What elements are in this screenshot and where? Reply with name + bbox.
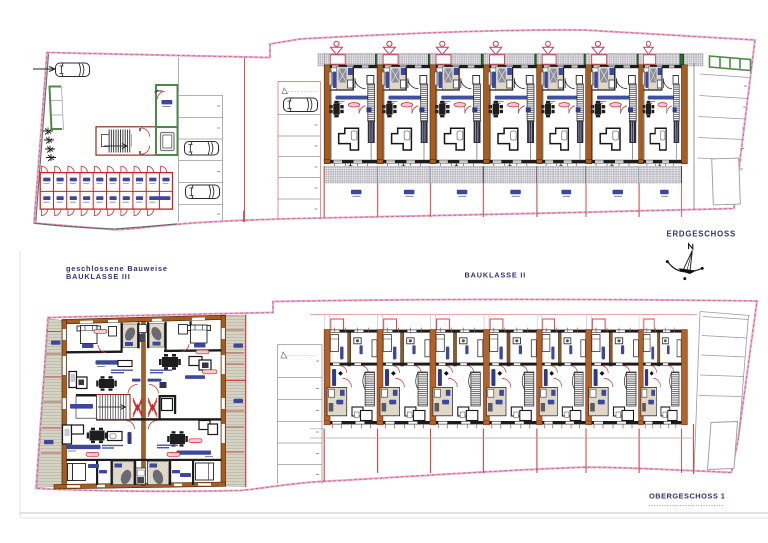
svg-text:BAUKLASSE III: BAUKLASSE III	[66, 272, 131, 281]
svg-text:ERDGESCHOSS: ERDGESCHOSS	[667, 230, 736, 239]
svg-text:OBERGESCHOSS 1: OBERGESCHOSS 1	[649, 492, 725, 501]
svg-text:BAUKLASSE II: BAUKLASSE II	[465, 271, 527, 280]
